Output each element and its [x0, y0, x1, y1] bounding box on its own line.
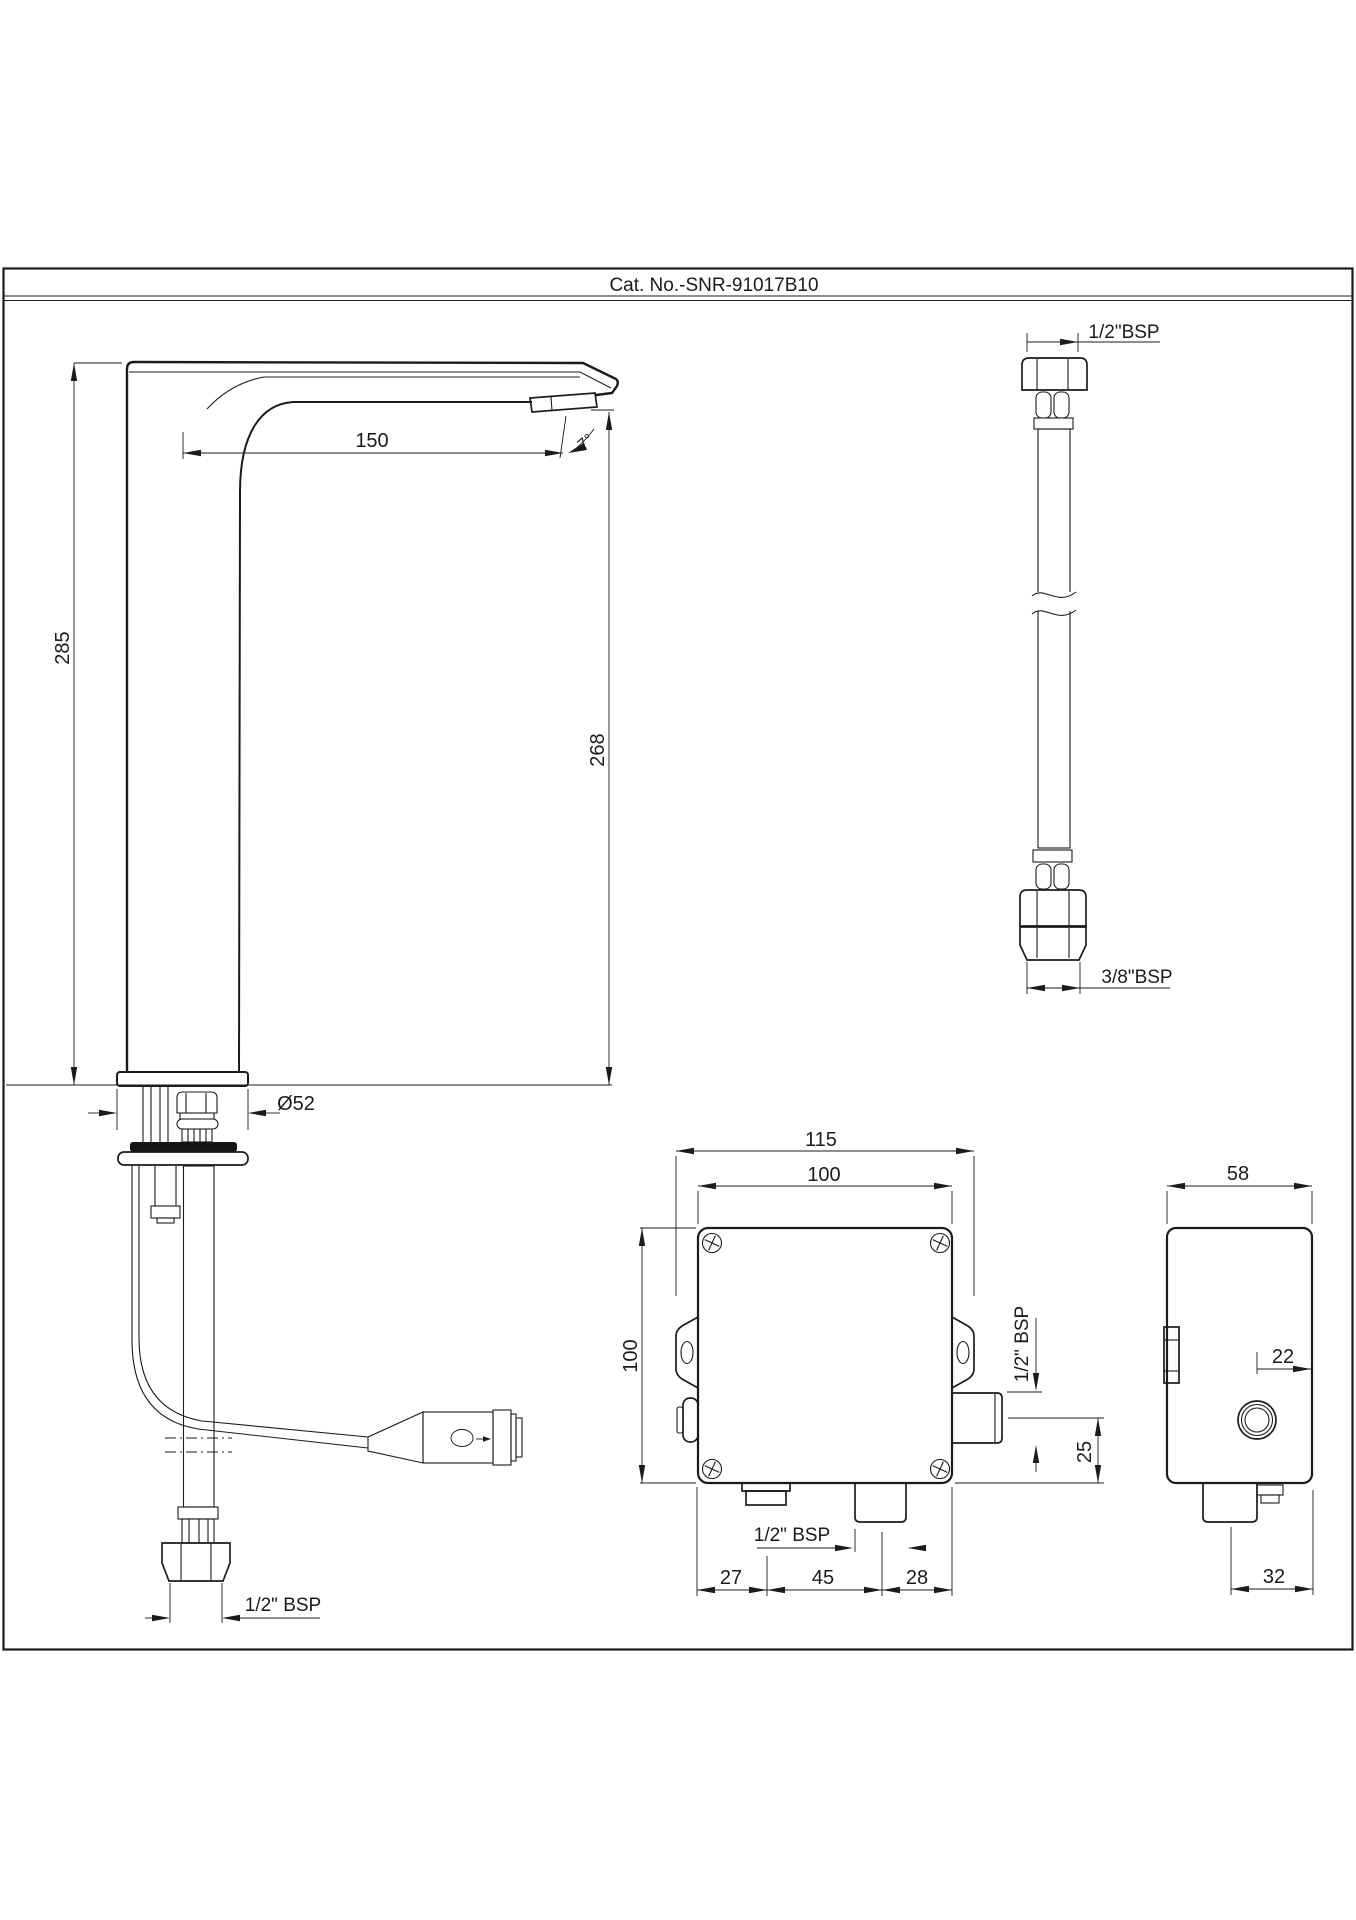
dim-inlet-thread: 1/2" BSP [245, 1595, 321, 1616]
dim-base-diameter: Ø52 [277, 1093, 315, 1115]
sensor-cable-connector [368, 1410, 522, 1465]
dim-pitch-left: 27 [720, 1567, 742, 1589]
technical-drawing-page: Cat. No.-SNR-91017B10 [0, 0, 1356, 1920]
faucet-outline [117, 362, 618, 1086]
dim-outlet-offset: 25 [1074, 1441, 1096, 1463]
dim-spout-height: 268 [587, 733, 609, 766]
title-bar: Cat. No.-SNR-91017B10 [609, 275, 818, 296]
screw-bottom-right [929, 1458, 950, 1479]
faucet-undercounter [118, 1087, 522, 1581]
dim-bottom-port-offset: 32 [1263, 1566, 1285, 1588]
dim-bottom-port-thread: 1/2" BSP [754, 1525, 830, 1546]
sensor-cable [132, 1166, 368, 1448]
dim-box-overall-width: 115 [805, 1129, 837, 1151]
control-box-front-view: 115 100 100 1/2" BSP [620, 1129, 1104, 1596]
locknut [118, 1152, 248, 1165]
box-front-outline [676, 1228, 1002, 1522]
side-bottom-port [1203, 1483, 1257, 1522]
dim-box-width: 100 [807, 1164, 840, 1186]
dim-hose-bottom-thread: 3/8"BSP [1101, 967, 1172, 988]
bottom-left-port [742, 1483, 790, 1491]
dim-port-offset: 22 [1272, 1346, 1294, 1368]
control-box-side-view: 58 22 32 [1164, 1163, 1313, 1595]
braided-hose [184, 1166, 215, 1507]
hose-hex-nut [162, 1543, 230, 1581]
dim-hose-top-thread: 1/2"BSP [1088, 322, 1159, 343]
cable-gland [683, 1398, 698, 1442]
dim-box-depth: 58 [1227, 1163, 1249, 1185]
faucet-view: 285 268 150 7° Ø52 [6, 362, 618, 1623]
screw-top-right [929, 1232, 950, 1253]
dim-overall-height: 285 [52, 631, 74, 664]
drawing-frame [4, 269, 1353, 1650]
catalog-number: Cat. No.-SNR-91017B10 [609, 275, 818, 296]
dim-spout-reach: 150 [355, 430, 388, 452]
hose-view: 1/2"BSP 3/8"BSP [1020, 322, 1173, 994]
hose-braid [1038, 429, 1070, 848]
hose-outline [1020, 358, 1087, 960]
hose-dimensions: 1/2"BSP 3/8"BSP [1027, 322, 1173, 994]
box-front-dimensions: 115 100 100 1/2" BSP [620, 1129, 1104, 1596]
gasket-washer [130, 1142, 237, 1152]
dim-pitch-right: 28 [906, 1567, 928, 1589]
dim-side-outlet-thread: 1/2" BSP [1012, 1306, 1033, 1382]
dim-box-height: 100 [620, 1339, 642, 1372]
box-side-outline [1164, 1228, 1312, 1522]
drawing-canvas: Cat. No.-SNR-91017B10 [0, 0, 1356, 1920]
sensor-port [1238, 1401, 1276, 1439]
screw-top-left [701, 1232, 722, 1253]
screw-bottom-left [701, 1458, 722, 1479]
dim-pitch-center: 45 [812, 1567, 834, 1589]
bottom-inlet-port [855, 1483, 906, 1522]
